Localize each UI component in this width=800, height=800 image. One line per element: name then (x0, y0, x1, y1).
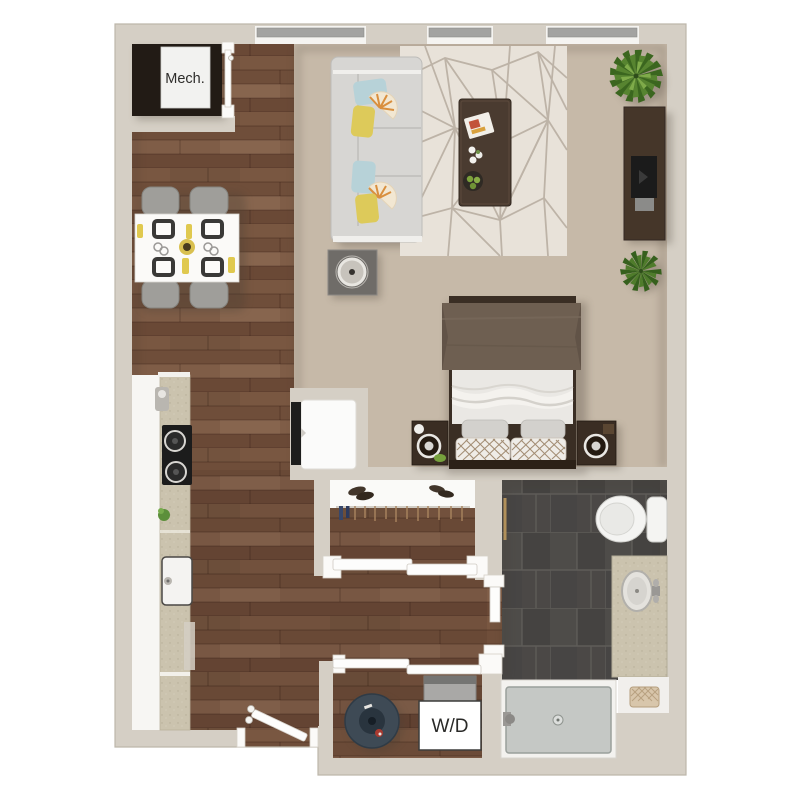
svg-text:W/D: W/D (432, 716, 469, 737)
svg-text:Mech.: Mech. (165, 71, 205, 87)
